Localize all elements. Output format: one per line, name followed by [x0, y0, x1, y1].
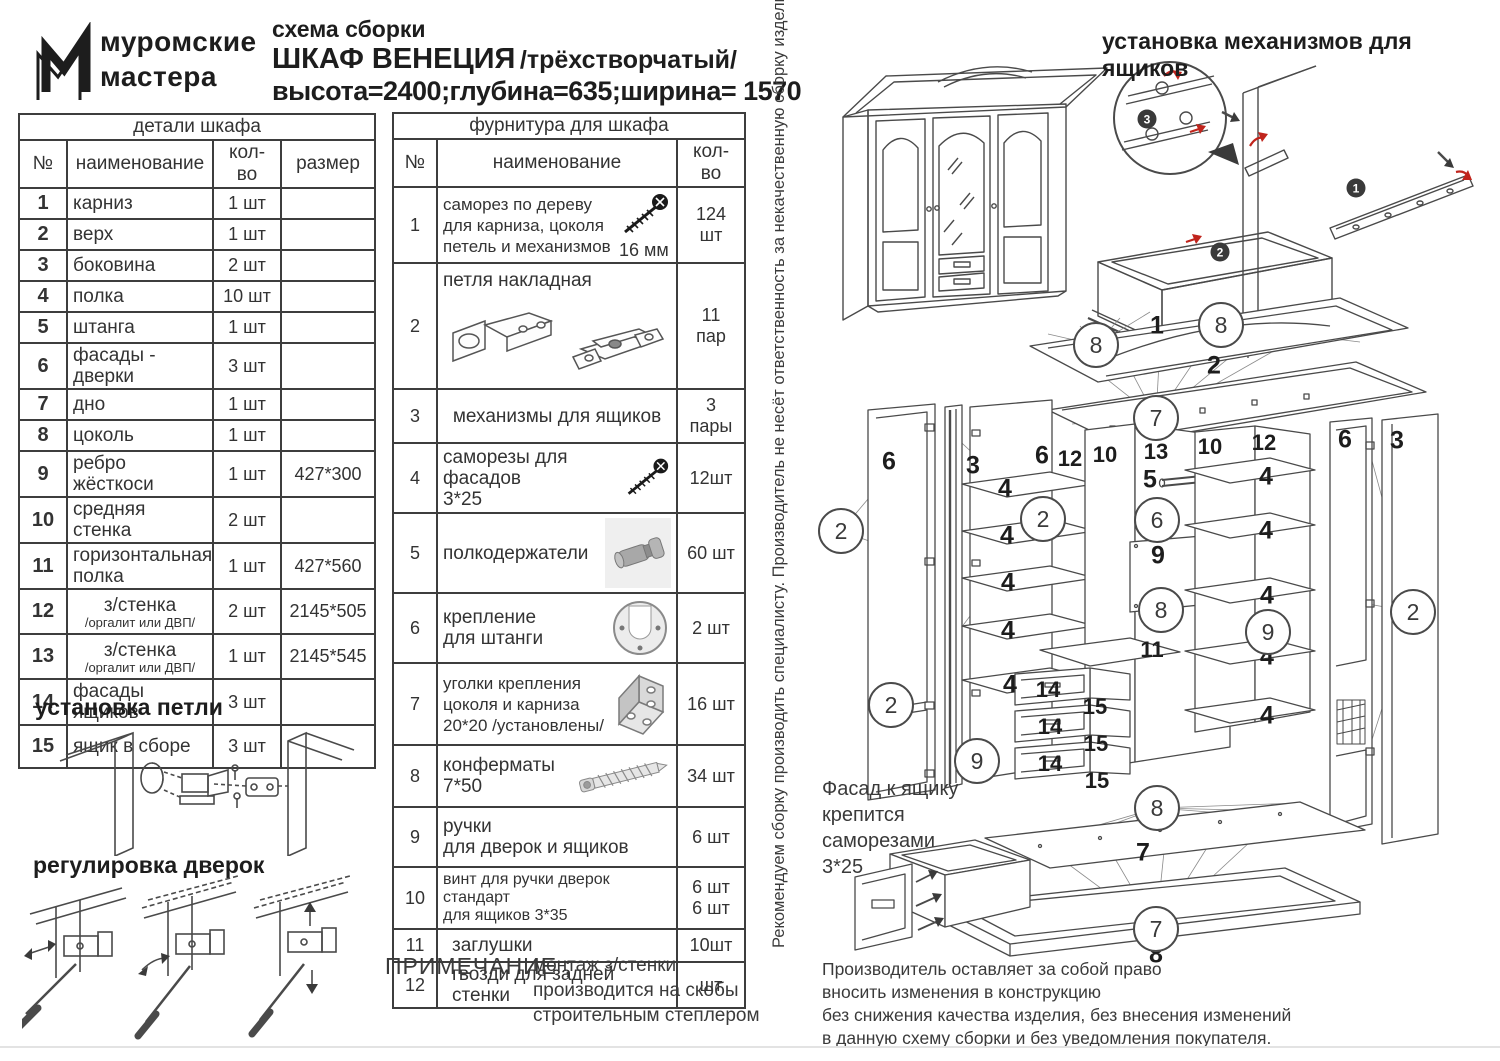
- col-num: №: [19, 140, 67, 188]
- part-label: 10: [1198, 436, 1222, 458]
- part-label: 4: [1259, 519, 1273, 544]
- part-label: 1: [1150, 314, 1164, 339]
- hardware-table-title: фурнитура для шкафа: [393, 113, 745, 139]
- hardware-table-header: № наименование кол- во: [393, 139, 745, 187]
- angle-bracket-icon: [613, 672, 671, 736]
- part-label: 11: [1140, 639, 1163, 661]
- table-row: 8 конферматы 7*50 34 шт: [393, 745, 745, 807]
- table-row: 13з/стенка/оргалит или ДВП/1 шт2145*545: [19, 634, 375, 679]
- part-label: 15: [1083, 696, 1107, 718]
- part-label: 12: [1252, 432, 1276, 454]
- table-row: 10средняя стенка2 шт: [19, 497, 375, 543]
- part-label: 4: [1260, 704, 1274, 729]
- table-row: 7дно1 шт: [19, 389, 375, 420]
- hardware-callout: 7: [1133, 395, 1179, 441]
- step-badge: 1: [1347, 179, 1366, 198]
- col-name: наименование: [67, 140, 213, 188]
- part-label: 14: [1038, 716, 1062, 738]
- hardware-callout: 9: [954, 738, 1000, 784]
- col-size: размер: [281, 140, 375, 188]
- hardware-callout: 2: [868, 682, 914, 728]
- page-bottom-rule: [0, 1046, 1500, 1048]
- hardware-table: фурнитура для шкафа № наименование кол- …: [392, 112, 746, 1009]
- table-row: 12з/стенка/оргалит или ДВП/2 шт2145*505: [19, 589, 375, 634]
- hardware-callout: 8: [1073, 322, 1119, 368]
- table-row: 7 уголки крепления цоколя и карниза 20*2…: [393, 663, 745, 745]
- hardware-callout: 2: [1020, 496, 1066, 542]
- part-label: 5: [1143, 468, 1157, 493]
- col-qty: кол- во: [213, 140, 281, 188]
- part-label: 3: [966, 454, 980, 479]
- vertical-warning-text: Рекомендуем сборку производить специалис…: [770, 86, 789, 948]
- table-row: 1карниз1 шт: [19, 188, 375, 219]
- table-row: 8цоколь1 шт: [19, 420, 375, 451]
- table-row: 11горизонтальная полка1 шт427*560: [19, 543, 375, 589]
- part-label: 4: [998, 477, 1012, 502]
- doc-type: схема сборки: [272, 16, 426, 43]
- brand-name: муромские мастера: [100, 24, 257, 94]
- hardware-callout: 2: [1390, 589, 1436, 635]
- table-row: 9ребро жёсткоси1 шт427*300: [19, 451, 375, 497]
- step-badge: 2: [1211, 243, 1230, 262]
- shelf-pin-icon: [605, 518, 671, 588]
- assembly-scheme-page: муромские мастера схема сборки ШКАФ ВЕНЕ…: [0, 0, 1500, 1061]
- brand-name-line1: муромские: [100, 24, 257, 59]
- table-row: 6 крепление для штанги 2 шт: [393, 593, 745, 663]
- product-title-row: ШКАФ ВЕНЕЦИЯ /трёхстворчатый/: [272, 43, 737, 76]
- part-label: 4: [1260, 584, 1274, 609]
- product-name: ШКАФ ВЕНЕЦИЯ: [272, 43, 515, 76]
- manufacturer-note: Производитель оставляет за собой право в…: [822, 958, 1291, 1050]
- hardware-callout: 8: [1198, 302, 1244, 348]
- table-row: 5штанга1 шт: [19, 312, 375, 343]
- table-row: 3 механизмы для ящиков 3 пары: [393, 389, 745, 443]
- hinge-install-diagram: [30, 714, 360, 856]
- parts-table-title: детали шкафа: [19, 114, 375, 140]
- table-row: 2 петля накладная 11 пар: [393, 263, 745, 389]
- part-label: 4: [1259, 465, 1273, 490]
- wardrobe-front-drawing: [843, 67, 1107, 320]
- table-row: 3боковина2 шт: [19, 250, 375, 281]
- table-row: 6фасады - дверки3 шт: [19, 343, 375, 389]
- facade-note: Фасад к ящику крепится саморезами 3*25: [822, 776, 958, 880]
- note-text: монтаж з/стенки производится на скобы ст…: [533, 953, 760, 1028]
- hardware-callout: 2: [818, 508, 864, 554]
- table-row: 2верх1 шт: [19, 219, 375, 250]
- part-label: 14: [1038, 753, 1062, 775]
- part-label: 4: [1000, 524, 1014, 549]
- hardware-callout: 8: [1138, 587, 1184, 633]
- wood-screw-icon: 16 мм: [619, 190, 671, 261]
- overlay-hinge-icon: [443, 291, 675, 383]
- confirmat-icon: [575, 754, 671, 798]
- parts-table-header: № наименование кол- во размер: [19, 140, 375, 188]
- part-label: 3: [1390, 429, 1404, 454]
- part-label: 13: [1144, 441, 1168, 463]
- hardware-callout: 7: [1133, 906, 1179, 952]
- product-dimensions: высота=2400;глубина=635;ширина= 1570: [272, 76, 801, 107]
- parts-table: детали шкафа № наименование кол- во разм…: [18, 113, 376, 769]
- part-label: 9: [1151, 544, 1165, 569]
- step-badge: 3: [1138, 110, 1157, 129]
- hardware-callout: 8: [1134, 785, 1180, 831]
- table-row: 10 винт для ручки дверок стандарт для ящ…: [393, 867, 745, 929]
- part-label: 4: [1001, 571, 1015, 596]
- part-label: 6: [1338, 428, 1352, 453]
- part-label: 15: [1085, 770, 1109, 792]
- part-label: 4: [1001, 619, 1015, 644]
- table-row: 5 полкодержатели 60 шт: [393, 513, 745, 593]
- part-label: 2: [1207, 354, 1221, 379]
- table-row: 1 саморез по дереву для карниза, цоколя …: [393, 187, 745, 263]
- rod-holder-icon: [609, 598, 671, 658]
- table-row: 4 саморезы для фасадов 3*25 12шт: [393, 443, 745, 513]
- part-label: 4: [1003, 673, 1017, 698]
- brand-name-line2: мастера: [100, 59, 257, 94]
- table-row: 9 ручки для дверок и ящиков 6 шт: [393, 807, 745, 867]
- part-label: 7: [1136, 841, 1150, 866]
- door-adjust-diagram: [22, 874, 362, 1052]
- part-label: 6: [882, 450, 896, 475]
- hardware-callout: 9: [1245, 609, 1291, 655]
- part-label: 6: [1035, 444, 1049, 469]
- table-row: 4полка10 шт: [19, 281, 375, 312]
- part-label: 15: [1084, 733, 1108, 755]
- drawer-mech-title: установка механизмов для ящиков: [1102, 28, 1500, 82]
- part-label: 14: [1036, 679, 1060, 701]
- brand-logo-icon: [28, 22, 106, 104]
- wood-screw-icon: [623, 455, 671, 501]
- hardware-callout: 6: [1134, 497, 1180, 543]
- product-variant: /трёхстворчатый/: [520, 43, 737, 76]
- part-label: 12: [1058, 448, 1082, 470]
- part-label: 10: [1093, 444, 1117, 466]
